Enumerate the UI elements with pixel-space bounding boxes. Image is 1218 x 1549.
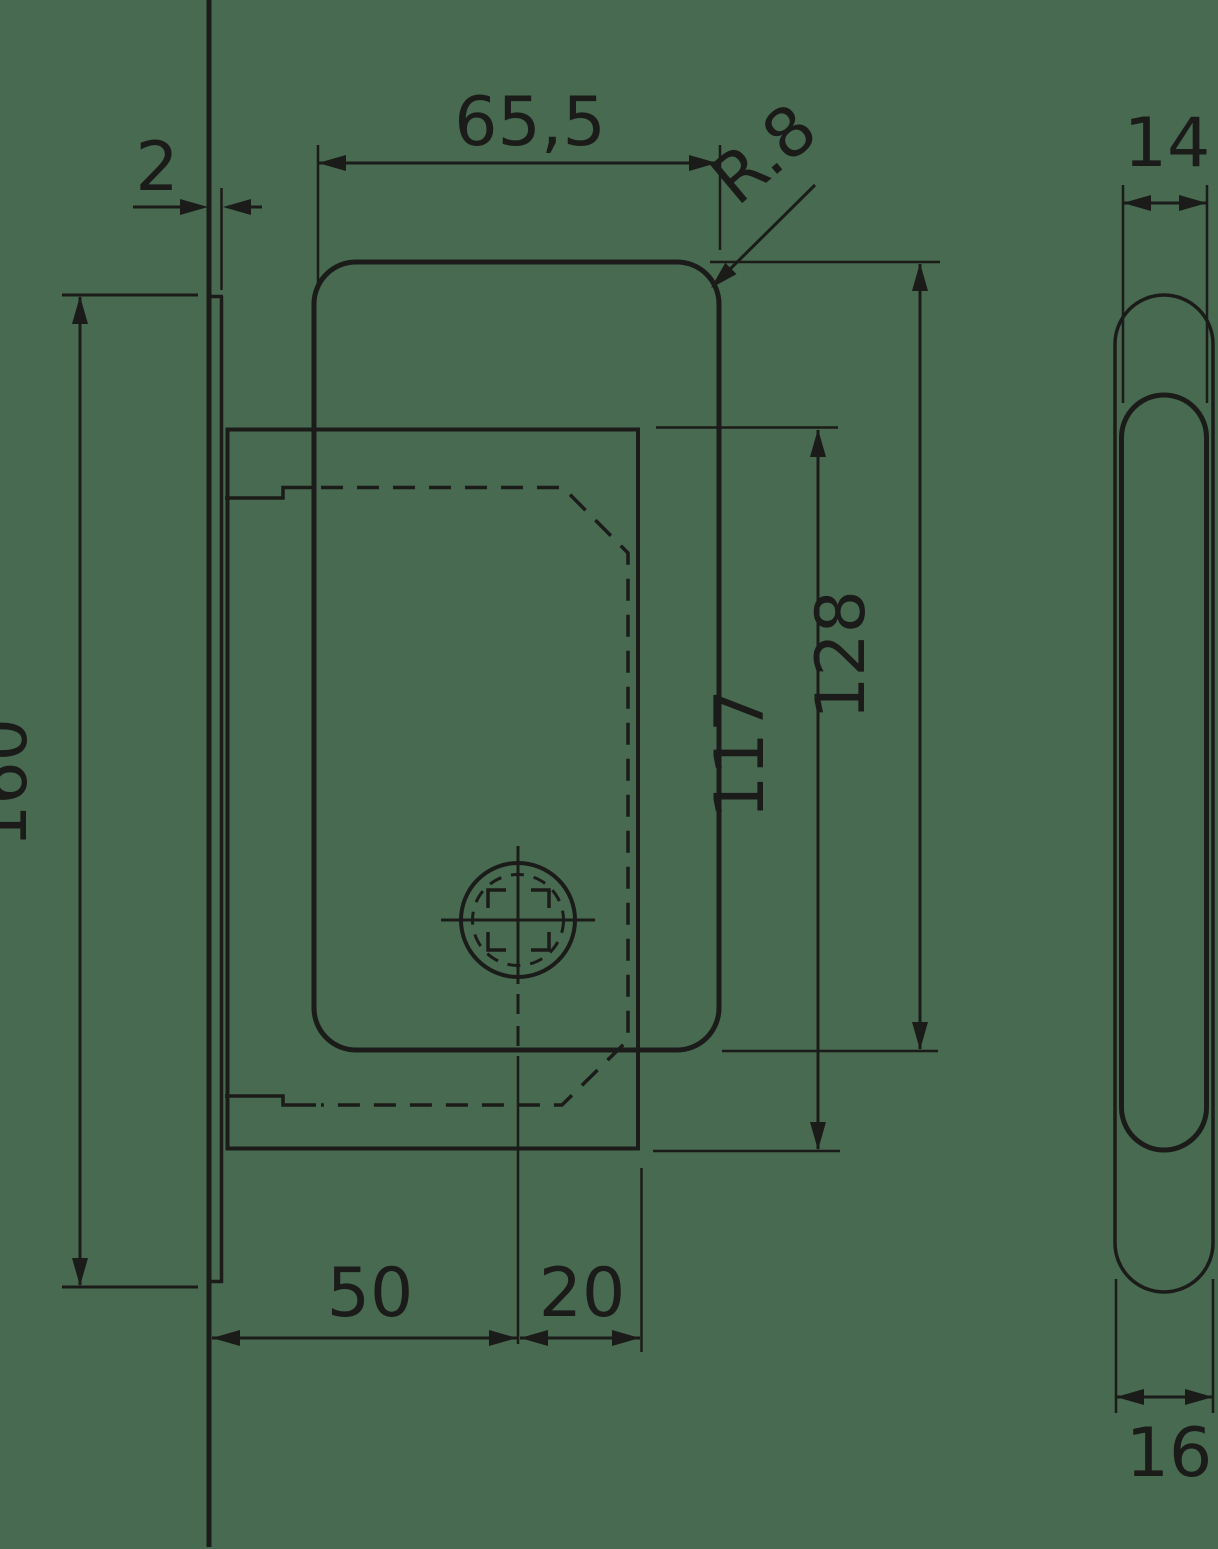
dim-label: 14 bbox=[1124, 104, 1211, 183]
dim-label: 50 bbox=[327, 1254, 414, 1333]
lock-dimension-drawing: 160 2 65,5 R.8 bbox=[0, 0, 1218, 1549]
dim-label: 160 bbox=[0, 718, 43, 848]
technical-drawing-canvas: 160 2 65,5 R.8 bbox=[0, 0, 1218, 1549]
dim-label: 117 bbox=[701, 689, 780, 819]
dim-label: 65,5 bbox=[454, 83, 605, 162]
dim-label: 20 bbox=[539, 1254, 626, 1333]
dim-label: 128 bbox=[802, 590, 881, 720]
dim-label: 16 bbox=[1126, 1414, 1213, 1493]
dim-label: 2 bbox=[135, 128, 178, 207]
